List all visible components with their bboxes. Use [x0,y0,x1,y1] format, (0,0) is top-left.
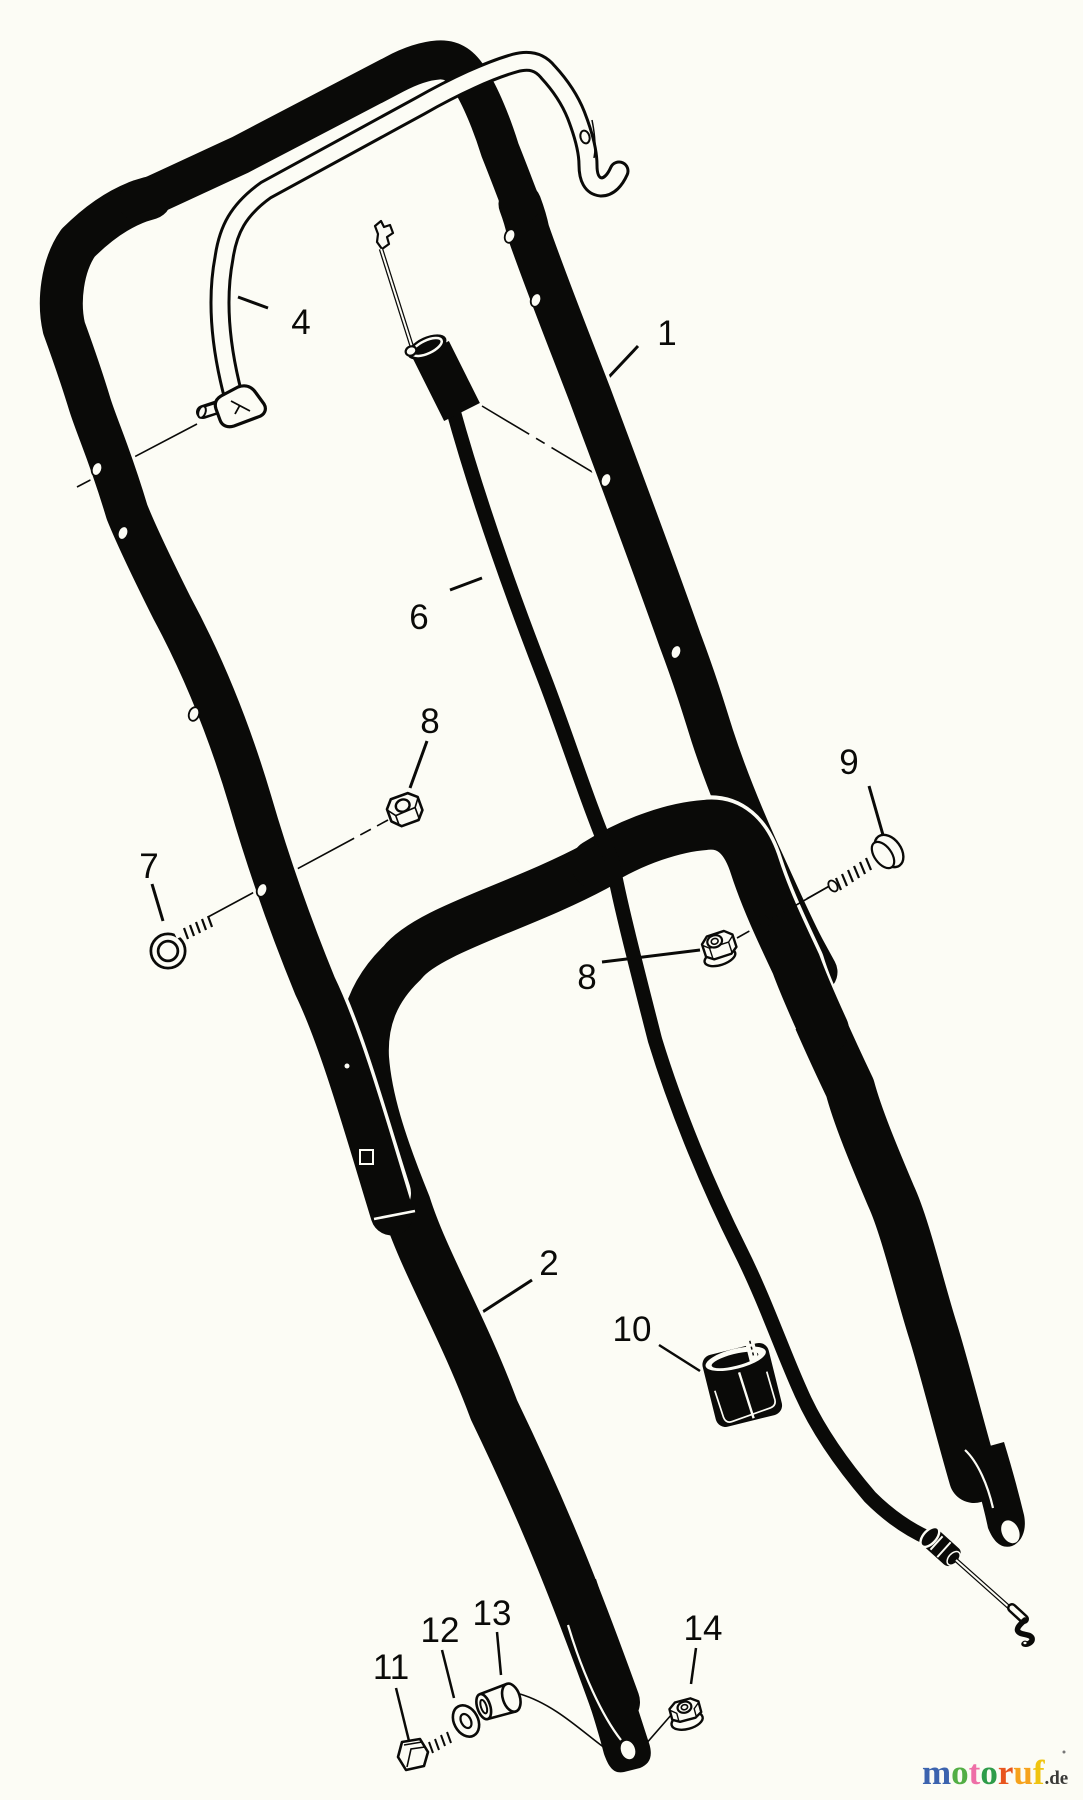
svg-text:12: 12 [421,1611,460,1650]
svg-text:8: 8 [577,958,596,997]
svg-text:2: 2 [539,1244,558,1283]
svg-text:9: 9 [839,743,858,782]
svg-text:6: 6 [409,598,428,637]
svg-text:8: 8 [420,702,439,741]
svg-text:1: 1 [657,314,676,353]
svg-text:7: 7 [139,847,158,886]
svg-text:14: 14 [684,1609,723,1648]
svg-text:13: 13 [473,1594,512,1633]
svg-text:11: 11 [373,1648,409,1687]
svg-text:4: 4 [291,303,310,342]
svg-text:10: 10 [613,1310,652,1349]
